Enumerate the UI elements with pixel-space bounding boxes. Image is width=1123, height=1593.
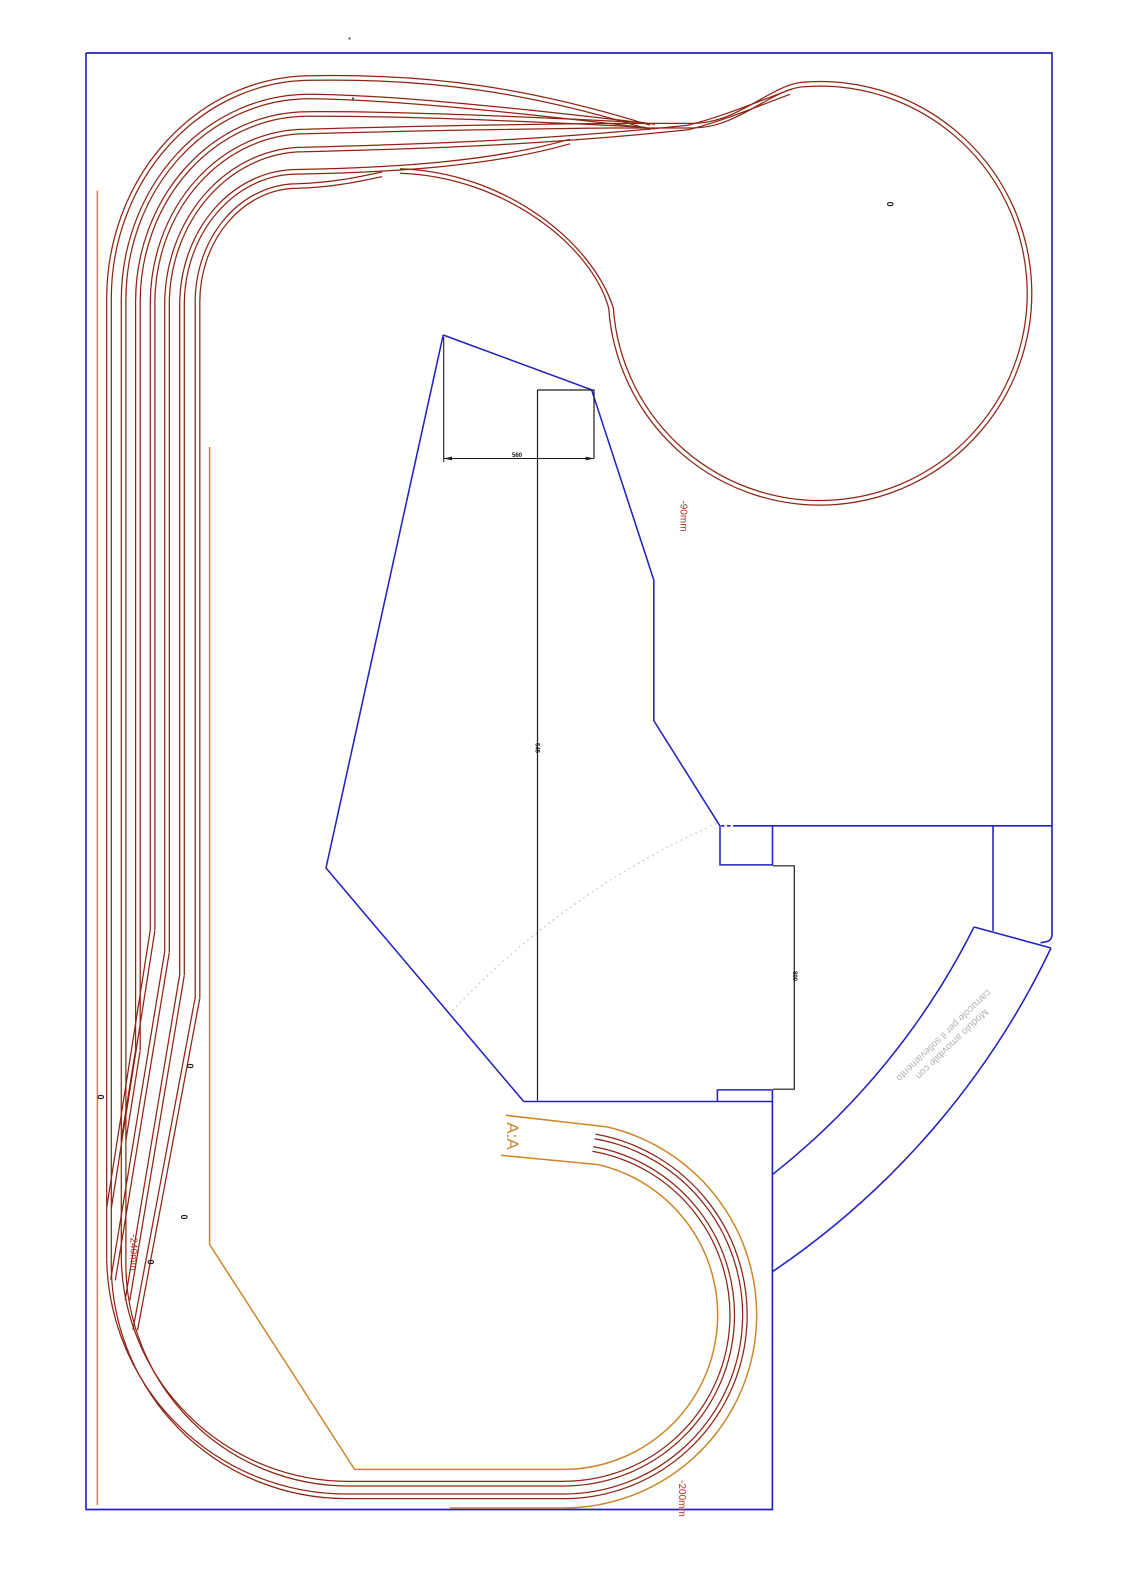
svg-text:0: 0 — [96, 1094, 106, 1099]
svg-text:0: 0 — [885, 202, 895, 207]
svg-text:0: 0 — [179, 1214, 189, 1219]
svg-text:A:A: A:A — [503, 1122, 522, 1150]
svg-text:0: 0 — [185, 1063, 195, 1068]
svg-text:0: 0 — [146, 1259, 156, 1264]
svg-text:545: 545 — [534, 743, 540, 754]
svg-text:-240mm: -240mm — [128, 1234, 139, 1271]
svg-text:560: 560 — [512, 453, 523, 459]
svg-text:800: 800 — [791, 971, 797, 982]
svg-text:-90mm: -90mm — [678, 500, 689, 531]
svg-text:-200mm: -200mm — [676, 1480, 687, 1517]
